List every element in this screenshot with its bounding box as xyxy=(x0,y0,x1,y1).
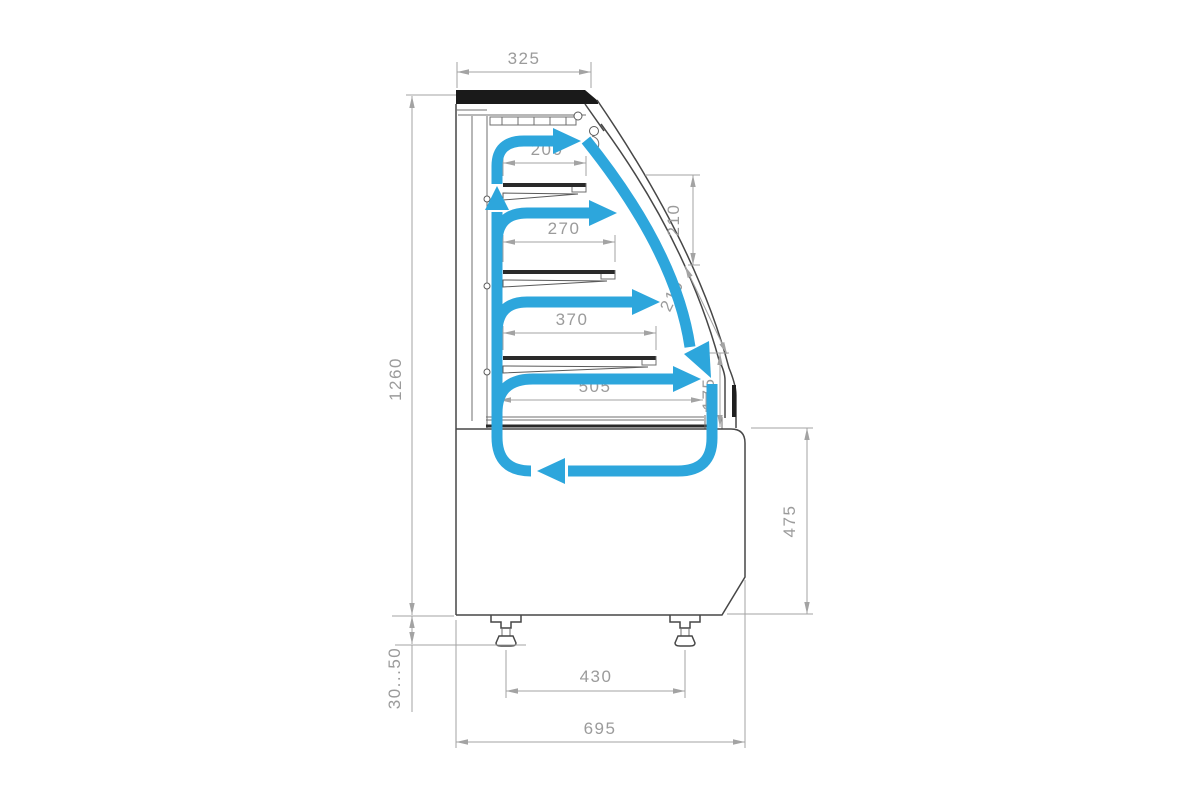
dimension-feet-spacing: 430 xyxy=(506,650,685,698)
dim-label-270: 270 xyxy=(548,219,581,238)
dimension-overall-height: 1260 xyxy=(386,95,456,616)
dim-label-1260: 1260 xyxy=(386,357,405,401)
light-fixture xyxy=(490,117,576,125)
dimension-shelf-3: 370 xyxy=(503,310,656,350)
shelf-3 xyxy=(484,356,656,375)
airflow-deck-arrowhead xyxy=(673,366,701,392)
dimension-top-width: 325 xyxy=(457,49,591,88)
top-panel xyxy=(456,90,598,104)
airflow-tier3-arrowhead xyxy=(632,289,660,315)
dim-label-325: 325 xyxy=(508,49,541,68)
deck xyxy=(486,415,722,429)
airflow-return-arrowhead xyxy=(537,458,565,484)
airflow-tier1-arrowhead xyxy=(553,128,581,154)
airflow-tier2-arrowhead xyxy=(589,200,617,226)
dim-label-430: 430 xyxy=(580,667,613,686)
airflow-arrows xyxy=(485,128,712,484)
light-fixture-ticks xyxy=(502,117,566,125)
dim-label-370: 370 xyxy=(556,310,589,329)
curtain-roller xyxy=(574,112,582,120)
glass-pivot xyxy=(590,127,599,136)
dimension-overall-depth: 695 xyxy=(456,580,745,748)
dim-label-475: 475 xyxy=(780,505,799,538)
dimension-shelf-2: 270 xyxy=(503,219,615,262)
dim-label-695: 695 xyxy=(584,719,617,738)
drawing-canvas: 325 1260 30...50 200 270 xyxy=(0,0,1200,800)
foot-left xyxy=(491,615,521,646)
shelf-2 xyxy=(484,270,615,289)
dim-label-30-50: 30...50 xyxy=(385,647,404,710)
dim-label-210-upper: 210 xyxy=(664,204,683,237)
foot-right xyxy=(670,615,700,646)
display-case-technical-drawing: 325 1260 30...50 200 270 xyxy=(0,0,1200,800)
